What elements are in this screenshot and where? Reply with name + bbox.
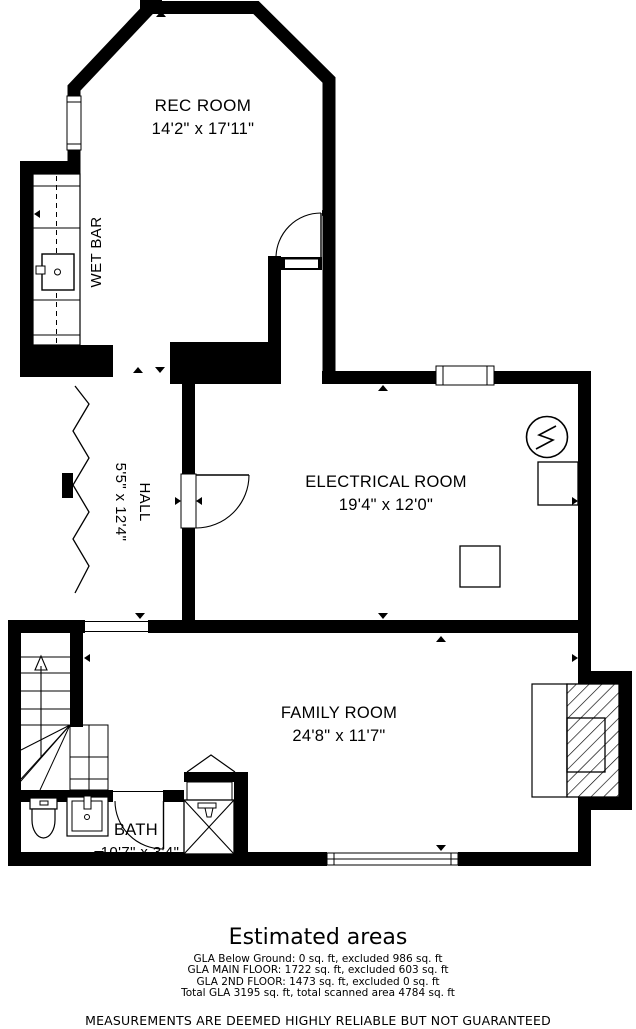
hall-label: HALL [136, 482, 153, 521]
fireplace-icon [532, 684, 619, 797]
hall-dims: 5'5" x 12'4" [112, 463, 129, 542]
electrical-meter-icon [527, 417, 568, 458]
electrical-room-dims: 19'4" x 12'0" [339, 496, 433, 514]
family-room-dims: 24'8" x 11'7" [292, 727, 385, 745]
wet-bar-label: WET BAR [88, 217, 105, 288]
rec-room-dims: 14'2" x 17'11" [152, 120, 255, 138]
gla-total-line: Total GLA 3195 sq. ft, total scanned are… [0, 988, 636, 999]
rec-room-label: REC ROOM [155, 96, 252, 115]
disclaimer-text: MEASUREMENTS ARE DEEMED HIGHLY RELIABLE … [0, 1013, 636, 1028]
top-wall-bump [140, 0, 162, 10]
fireplace-hearth [532, 684, 567, 797]
equipment-box [460, 546, 500, 587]
floor-plan: REC ROOM 14'2" x 17'11" WET BAR HALL 5'5… [0, 0, 636, 912]
floor-plan-svg: REC ROOM 14'2" x 17'11" WET BAR HALL 5'5… [0, 0, 636, 912]
bath-dims: 10'7" x 3'4" [101, 844, 180, 861]
window-symbol [436, 366, 494, 385]
window-symbol [67, 96, 81, 150]
wet-bar-counter [33, 174, 80, 345]
bath-label: BATH [114, 821, 158, 839]
family-room-label: FAMILY ROOM [281, 704, 397, 722]
electrical-room-label: ELECTRICAL ROOM [305, 473, 467, 491]
estimated-areas-title: Estimated areas [0, 925, 636, 951]
wet-bar-sink-icon [36, 254, 74, 290]
sink-vanity-icon [67, 796, 108, 836]
window-symbol [327, 853, 458, 865]
estimated-areas-lines: GLA Below Ground: 0 sq. ft, excluded 986… [0, 954, 636, 1000]
shower-icon [184, 755, 235, 854]
